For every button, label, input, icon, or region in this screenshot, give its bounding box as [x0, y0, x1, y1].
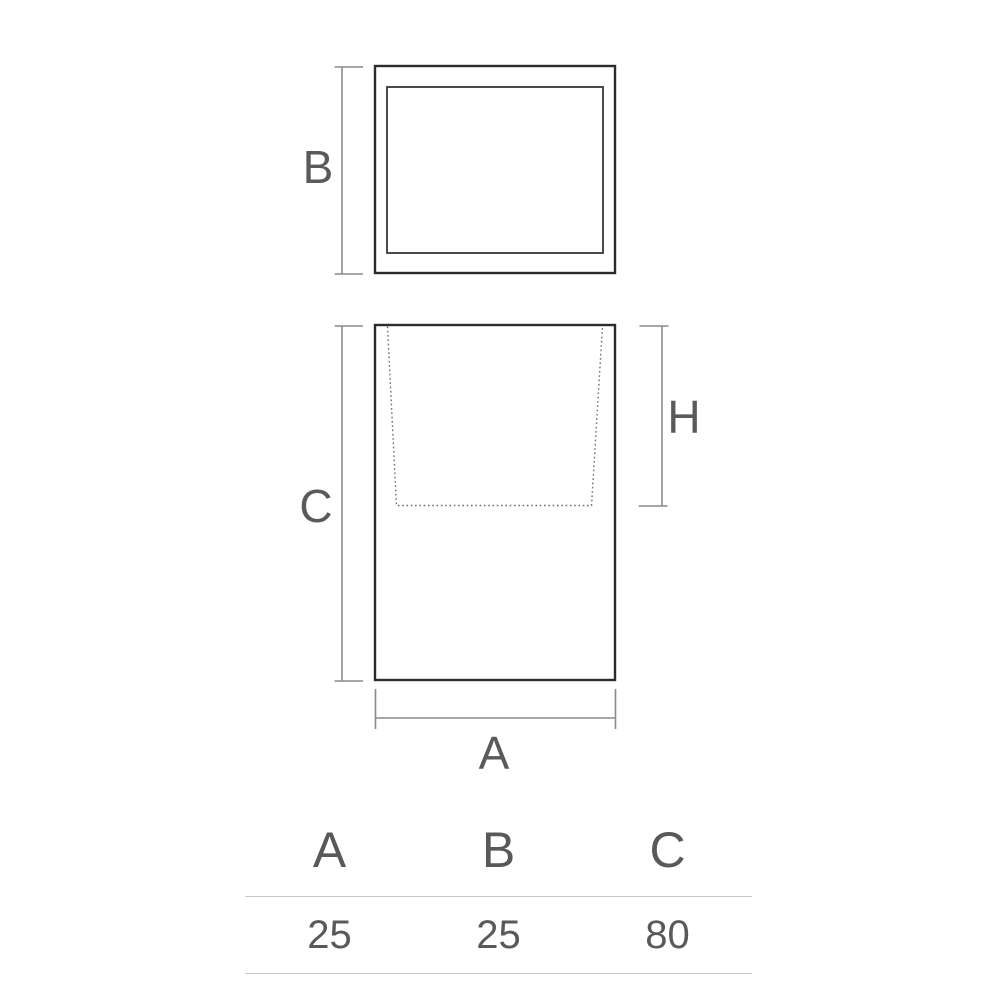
- dim-c-line: [335, 326, 364, 681]
- spec-value-b: 25: [414, 913, 583, 958]
- spec-value-c: 80: [583, 913, 752, 958]
- dim-a-label: A: [479, 727, 510, 779]
- spec-value-a: 25: [245, 913, 414, 958]
- dim-h-label: H: [667, 391, 700, 443]
- top-view-outer-rect: [375, 66, 615, 273]
- dimension-drawing-page: B C H A A B C: [0, 0, 1000, 1000]
- spec-table-value-row: 25 25 80: [245, 897, 752, 974]
- top-view: [375, 66, 615, 273]
- front-view-rect: [375, 325, 615, 680]
- front-view: [375, 325, 615, 680]
- spec-header-b: B: [414, 821, 583, 879]
- dim-a-line: [376, 689, 616, 729]
- spec-table: A B C 25 25 80: [245, 804, 752, 974]
- dim-b-label: B: [303, 141, 334, 193]
- dim-c-label: C: [299, 480, 332, 532]
- dimension-drawing: B C H A: [0, 0, 1000, 800]
- dim-h-line: [639, 326, 669, 506]
- dim-b-line: [335, 67, 364, 274]
- spec-table-header-row: A B C: [245, 804, 752, 897]
- spec-header-a: A: [245, 821, 414, 879]
- spec-header-c: C: [583, 821, 752, 879]
